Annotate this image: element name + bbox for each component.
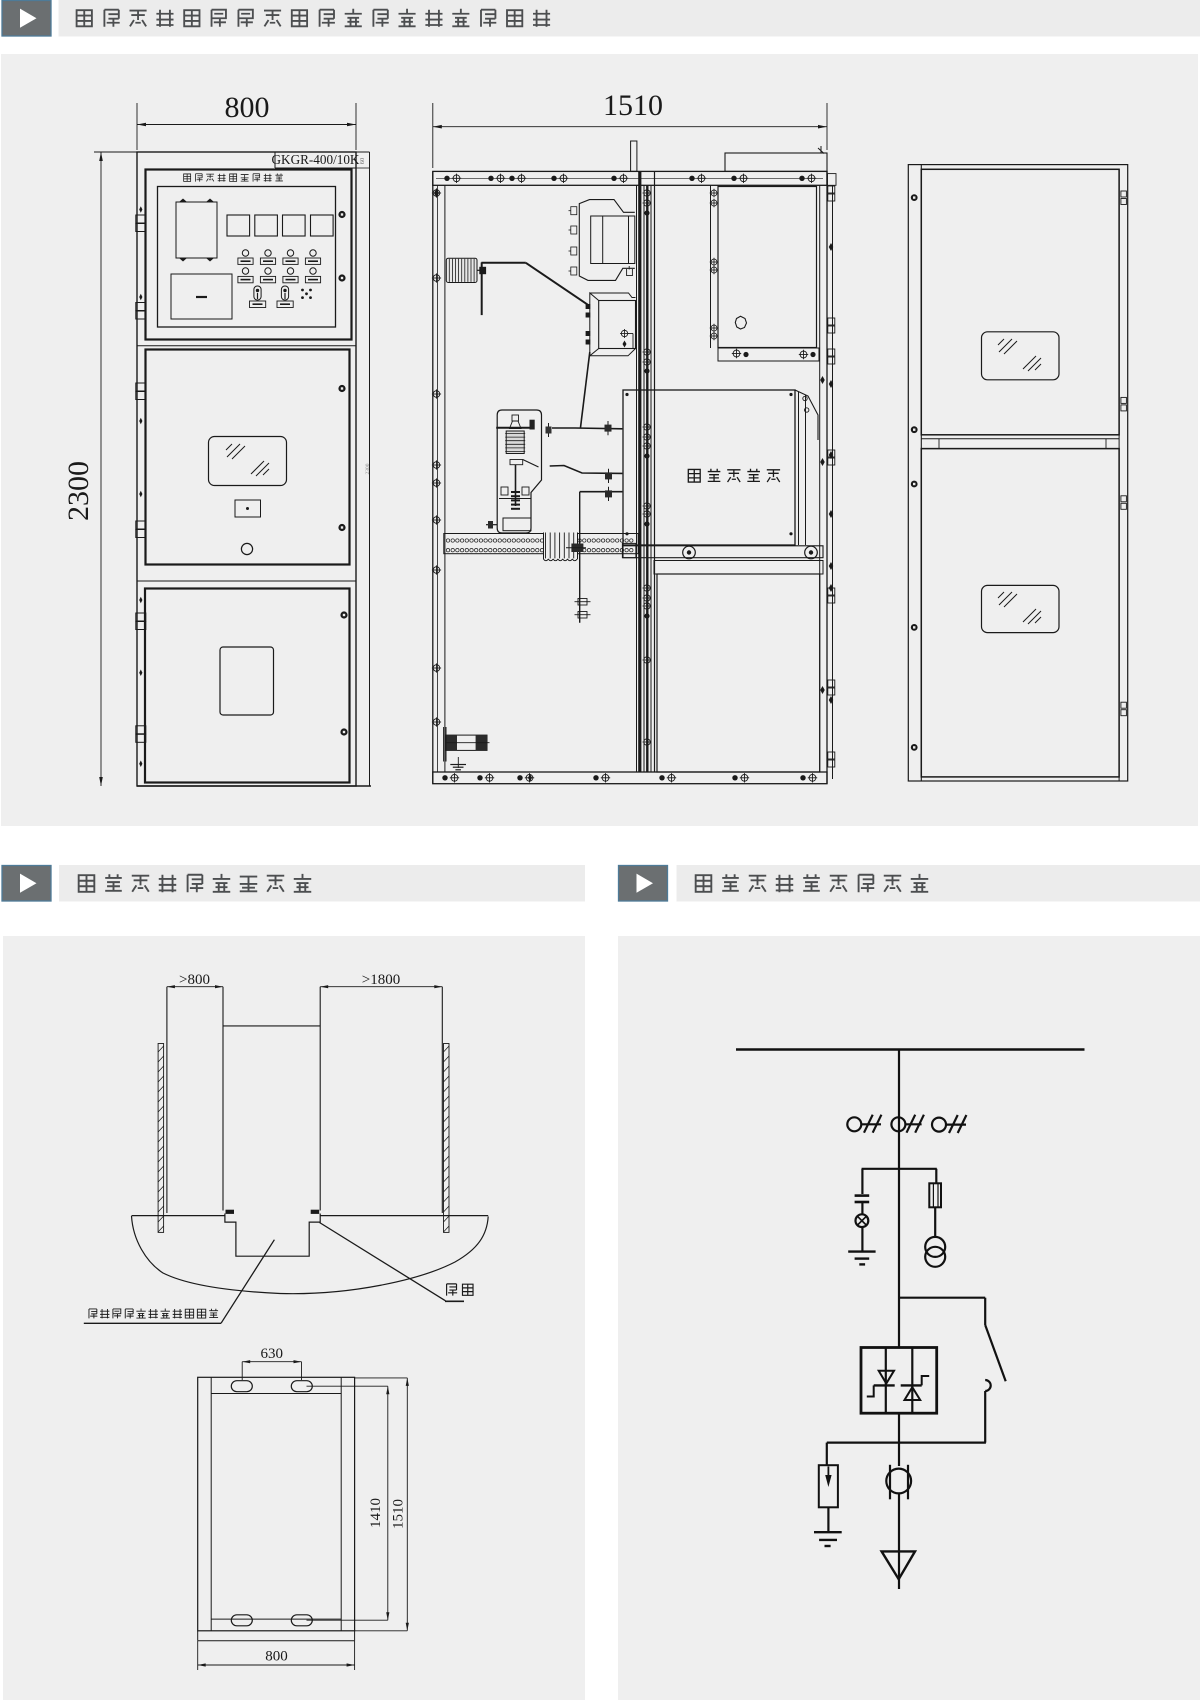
svg-text:2300: 2300 bbox=[365, 463, 371, 474]
svg-text:>1800: >1800 bbox=[362, 972, 400, 988]
svg-text:1410: 1410 bbox=[368, 1498, 384, 1528]
svg-text:630: 630 bbox=[261, 1346, 284, 1362]
svg-text:800: 800 bbox=[265, 1649, 288, 1665]
svg-text:GKGR-400/10K: GKGR-400/10K bbox=[272, 152, 360, 167]
svg-text:2300: 2300 bbox=[62, 461, 95, 521]
svg-text:1510: 1510 bbox=[603, 89, 663, 122]
svg-text:800: 800 bbox=[225, 91, 270, 124]
svg-text:1510: 1510 bbox=[391, 1499, 407, 1529]
svg-text:>800: >800 bbox=[179, 972, 210, 988]
svg-text:60: 60 bbox=[359, 158, 366, 165]
